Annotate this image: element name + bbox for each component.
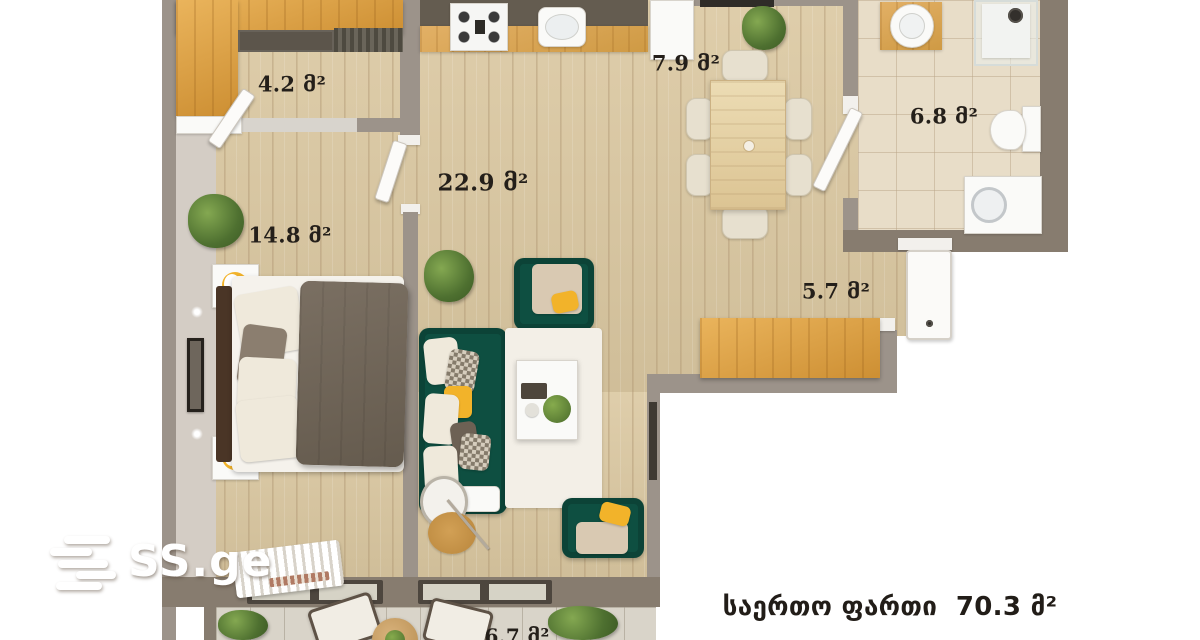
- wall-bathroom-left-upper: [843, 0, 858, 96]
- toilet: [990, 110, 1026, 150]
- kitchen-sink: [538, 7, 586, 47]
- coffee-table-vase: [525, 403, 539, 417]
- wall-bathroom-right: [1040, 0, 1068, 252]
- washing-machine: [964, 176, 1042, 234]
- duvet: [296, 281, 409, 468]
- area-label-storage: 4.2 მ²: [258, 72, 326, 97]
- plant: [548, 606, 618, 640]
- area-label-balcony-east: 5.7 მ²: [802, 279, 870, 304]
- wall-art: [187, 338, 204, 412]
- shower-head: [1008, 8, 1023, 23]
- dining-chair: [722, 50, 768, 82]
- floor-plan-canvas: 4.2 მ² 7.9 მ² 22.9 მ² 14.8 მ² 6.8 მ² 5.7…: [0, 0, 1200, 640]
- washing-machine-drum: [971, 187, 1007, 223]
- bench-accent: [269, 571, 330, 587]
- armchair: [514, 258, 594, 330]
- coffee-table: [516, 360, 578, 440]
- wall-south-balcony-left: [204, 607, 216, 640]
- plant: [742, 6, 786, 50]
- stove-center-panel: [475, 20, 485, 34]
- pillow: [235, 395, 303, 463]
- window-pane: [423, 584, 480, 600]
- bed-headboard: [216, 286, 232, 462]
- bathroom-sink: [890, 4, 934, 48]
- coffee-table-plant: [543, 395, 571, 423]
- dining-chair: [784, 98, 812, 140]
- logo-bar: [64, 536, 110, 544]
- area-label-bedroom: 14.8 მ²: [248, 223, 331, 248]
- wall-storage-bottom-right: [357, 118, 403, 132]
- armchair: [562, 498, 644, 558]
- area-label-balcony-south: 6.7 მ²: [484, 624, 549, 640]
- gas-stove: [450, 3, 508, 51]
- round-rug: [428, 512, 476, 554]
- shower-tray: [982, 4, 1030, 58]
- shower: [974, 0, 1038, 66]
- plant: [188, 194, 244, 248]
- coffee-table-books: [521, 383, 547, 399]
- wall-art-print: [190, 341, 201, 409]
- wardrobe-side: [176, 0, 238, 116]
- plant: [424, 250, 474, 302]
- area-label-living: 22.9 მ²: [438, 170, 529, 197]
- wall-sconce: [191, 428, 203, 440]
- dining-table: [710, 80, 786, 210]
- logo-bar: [76, 571, 116, 579]
- kitchen-sink-basin: [545, 14, 579, 40]
- dining-chair: [784, 154, 812, 196]
- wall-living-right: [647, 392, 660, 578]
- pillow: [458, 433, 492, 472]
- storage-rack: [334, 28, 403, 52]
- area-label-bathroom: 6.8 მ²: [910, 104, 978, 129]
- ss-logo: SS.ge: [50, 532, 250, 596]
- window-pane: [489, 584, 546, 600]
- logo-bar: [50, 548, 92, 556]
- balcony-door: [906, 250, 952, 340]
- balcony-door-sill: [898, 238, 952, 250]
- logo-bar: [56, 582, 102, 590]
- exterior-white-patch: [895, 336, 950, 396]
- logo-bar: [58, 560, 108, 568]
- door-handle: [926, 320, 933, 327]
- storage-chest: [700, 318, 880, 378]
- wall-kitchen-vertical: [400, 0, 420, 143]
- plant: [218, 610, 268, 640]
- area-label-dining: 7.9 მ²: [652, 51, 720, 76]
- wall-sconce: [191, 306, 203, 318]
- patio-table-plant: [385, 630, 405, 640]
- bathroom-sink-basin: [899, 13, 925, 39]
- armchair-cushion: [576, 522, 628, 554]
- dining-chair: [722, 205, 768, 239]
- table-knob: [743, 140, 755, 152]
- window-living-right: [649, 402, 657, 480]
- storage-counter: [238, 30, 334, 52]
- total-area-text: საერთო ფართი 70.3 მ²: [723, 592, 1058, 622]
- logo-text: SS.ge: [128, 536, 272, 587]
- bed: [232, 276, 404, 472]
